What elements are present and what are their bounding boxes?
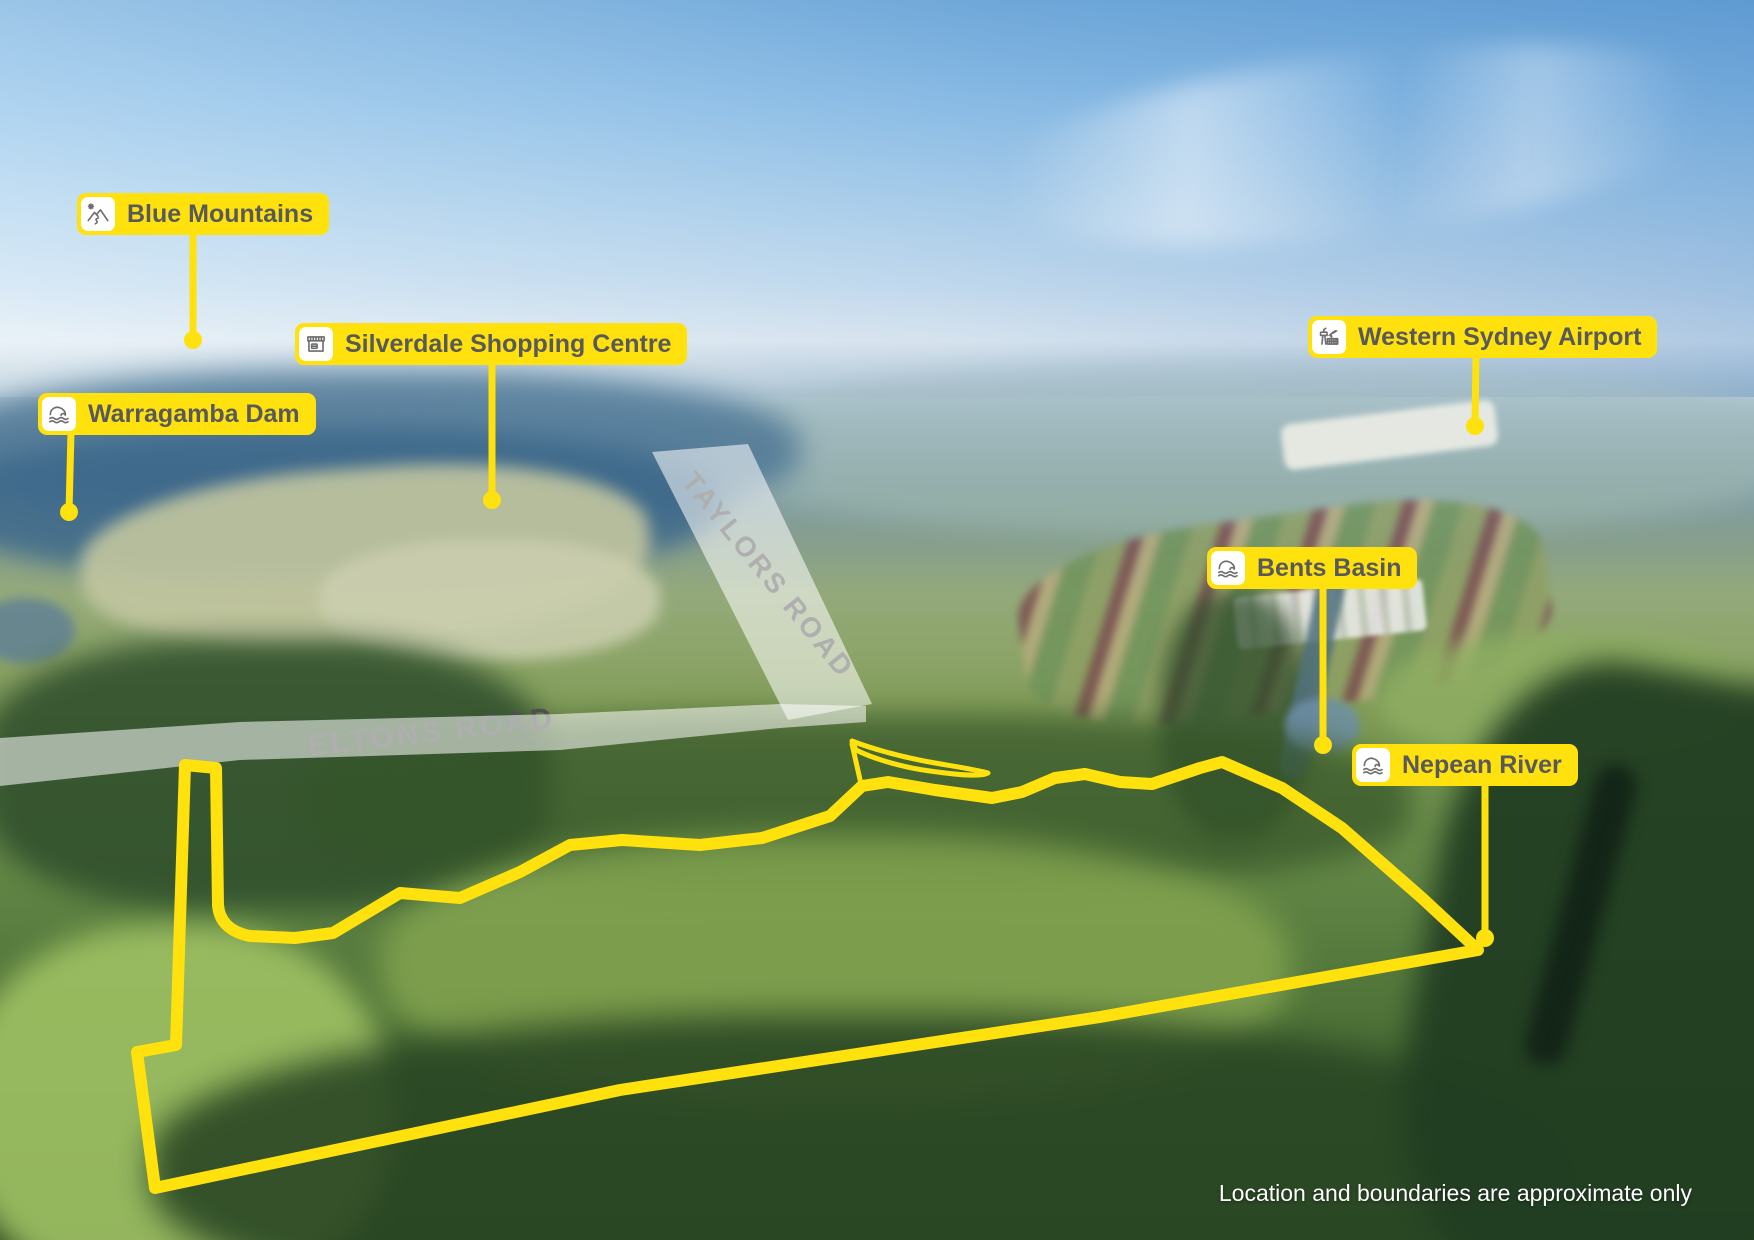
label-warragamba-dam: Warragamba Dam [38, 393, 316, 435]
leader-dot-bents-basin [1314, 736, 1332, 754]
label-silverdale-shopping-centre: Silverdale Shopping Centre [295, 323, 687, 365]
label-text: Warragamba Dam [88, 400, 300, 429]
label-text: Silverdale Shopping Centre [345, 330, 671, 359]
leader-dot-airport [1466, 417, 1484, 435]
label-text: Western Sydney Airport [1358, 323, 1641, 352]
label-nepean-river: Nepean River [1352, 744, 1578, 786]
leader-dot-blue-mountains [184, 331, 202, 349]
leader-dot-warragamba [60, 503, 78, 521]
property-boundary-outline [137, 762, 1478, 1188]
leader-line-airport [1475, 354, 1476, 426]
airport-icon [1312, 320, 1346, 354]
label-blue-mountains: Blue Mountains [77, 193, 329, 235]
road-band-taylors [652, 444, 872, 720]
mountains-icon [81, 197, 115, 231]
label-western-sydney-airport: Western Sydney Airport [1308, 316, 1657, 358]
boundary-sliver [852, 741, 988, 775]
leader-dot-nepean-river [1476, 929, 1494, 947]
aerial-location-map: TAYLORS ROAD ELTONS ROAD Blue Mountains … [0, 0, 1754, 1240]
wave-icon [1356, 748, 1390, 782]
road-band-eltons [0, 704, 866, 786]
shop-icon [299, 327, 333, 361]
label-text: Nepean River [1402, 751, 1562, 780]
leader-dot-silverdale [483, 491, 501, 509]
wave-icon [1211, 551, 1245, 585]
label-bents-basin: Bents Basin [1207, 547, 1417, 589]
wave-icon [42, 397, 76, 431]
label-text: Blue Mountains [127, 200, 313, 229]
disclaimer-text: Location and boundaries are approximate … [1219, 1180, 1692, 1207]
map-overlay [0, 0, 1754, 1240]
label-text: Bents Basin [1257, 554, 1401, 583]
leader-line-warragamba [69, 432, 71, 512]
